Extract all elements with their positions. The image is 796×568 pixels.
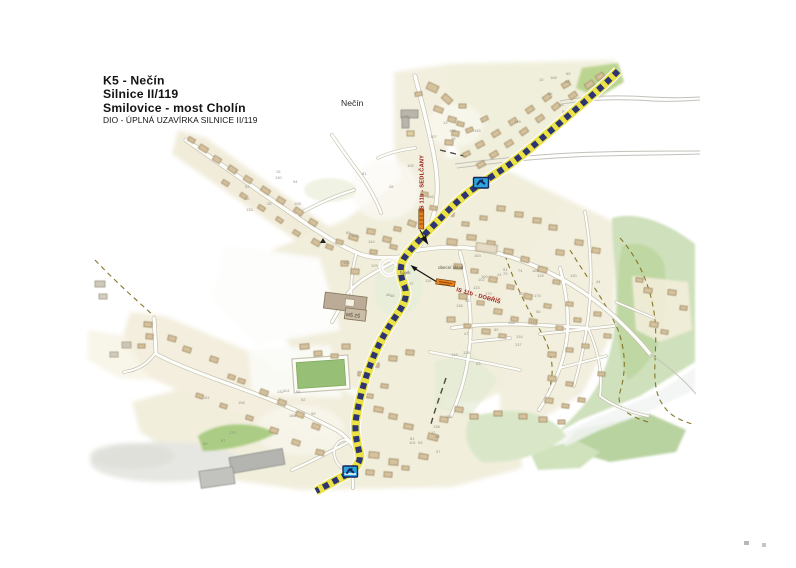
svg-text:133: 133	[473, 285, 480, 290]
svg-text:hájek: hájek	[400, 270, 411, 275]
svg-text:12: 12	[431, 430, 436, 435]
svg-text:134: 134	[516, 334, 523, 339]
svg-text:93: 93	[418, 440, 423, 445]
svg-text:144: 144	[368, 239, 375, 244]
svg-text:56: 56	[548, 91, 553, 96]
svg-text:138: 138	[433, 424, 440, 429]
svg-text:186: 186	[449, 128, 456, 133]
svg-text:81: 81	[362, 171, 367, 176]
svg-text:129: 129	[537, 273, 544, 278]
svg-text:173: 173	[229, 430, 236, 435]
svg-text:186: 186	[445, 414, 452, 419]
svg-text:Smilovice - most Cholín: Smilovice - most Cholín	[103, 101, 246, 115]
svg-text:186: 186	[289, 413, 296, 418]
svg-text:168: 168	[550, 75, 557, 80]
svg-text:46: 46	[386, 292, 391, 297]
svg-text:105: 105	[407, 163, 414, 168]
svg-text:26: 26	[267, 201, 272, 206]
svg-text:80: 80	[494, 327, 499, 332]
svg-text:95: 95	[296, 389, 301, 394]
svg-text:60: 60	[203, 441, 208, 446]
svg-text:99: 99	[311, 411, 316, 416]
svg-text:10: 10	[245, 196, 250, 201]
svg-text:136: 136	[456, 303, 463, 308]
svg-text:114: 114	[283, 388, 290, 393]
svg-text:125: 125	[371, 263, 378, 268]
svg-text:48: 48	[390, 293, 395, 298]
svg-text:52: 52	[301, 397, 306, 402]
svg-text:138: 138	[463, 350, 470, 355]
svg-text:33: 33	[465, 298, 470, 303]
svg-text:133: 133	[246, 207, 253, 212]
svg-text:Silnice II/119: Silnice II/119	[103, 87, 178, 101]
svg-text:52: 52	[245, 184, 250, 189]
svg-text:163: 163	[474, 253, 481, 258]
svg-text:47: 47	[464, 331, 469, 336]
svg-text:146: 146	[451, 352, 458, 357]
svg-text:56: 56	[559, 102, 564, 107]
svg-text:74: 74	[518, 268, 523, 273]
svg-text:IS 11b - SEDLČANY: IS 11b - SEDLČANY	[419, 155, 426, 211]
svg-text:28: 28	[389, 184, 394, 189]
svg-text:94: 94	[293, 179, 298, 184]
svg-text:13: 13	[443, 120, 448, 125]
svg-text:181: 181	[203, 395, 210, 400]
svg-text:145: 145	[474, 128, 481, 133]
svg-text:176: 176	[534, 293, 541, 298]
svg-text:15: 15	[276, 169, 281, 174]
svg-text:130: 130	[570, 273, 577, 278]
svg-text:97: 97	[436, 449, 441, 454]
svg-text:133: 133	[530, 319, 537, 324]
svg-text:130: 130	[275, 175, 282, 180]
svg-text:DIO - ÚPLNÁ UZAVÍRKA SILNICE I: DIO - ÚPLNÁ UZAVÍRKA SILNICE II/119	[103, 115, 258, 125]
svg-text:53: 53	[476, 361, 481, 366]
svg-text:K5 - Nečín: K5 - Nečín	[103, 74, 165, 88]
svg-text:102: 102	[478, 277, 485, 282]
svg-text:70: 70	[503, 271, 508, 276]
svg-text:87: 87	[221, 438, 226, 443]
svg-text:73: 73	[404, 114, 409, 119]
svg-text:65: 65	[566, 71, 571, 76]
svg-text:132: 132	[277, 389, 284, 394]
svg-text:obecní sklad: obecní sklad	[438, 265, 464, 270]
svg-text:148: 148	[514, 119, 521, 124]
svg-text:24: 24	[497, 272, 502, 277]
svg-text:44: 44	[596, 279, 601, 284]
svg-text:107: 107	[430, 134, 437, 139]
svg-text:85: 85	[519, 291, 524, 296]
svg-text:56: 56	[536, 309, 541, 314]
svg-text:Nečín: Nečín	[341, 98, 364, 108]
svg-text:88: 88	[435, 434, 440, 439]
svg-text:81: 81	[410, 436, 415, 441]
svg-text:108: 108	[294, 201, 301, 206]
svg-text:10: 10	[539, 77, 544, 82]
svg-text:135: 135	[508, 320, 515, 325]
svg-text:186: 186	[427, 194, 434, 199]
svg-text:128: 128	[351, 233, 358, 238]
svg-text:158: 158	[238, 400, 245, 405]
svg-text:137: 137	[515, 342, 522, 347]
svg-text:52: 52	[565, 79, 570, 84]
svg-text:38: 38	[451, 136, 456, 141]
svg-text:103: 103	[343, 260, 350, 265]
